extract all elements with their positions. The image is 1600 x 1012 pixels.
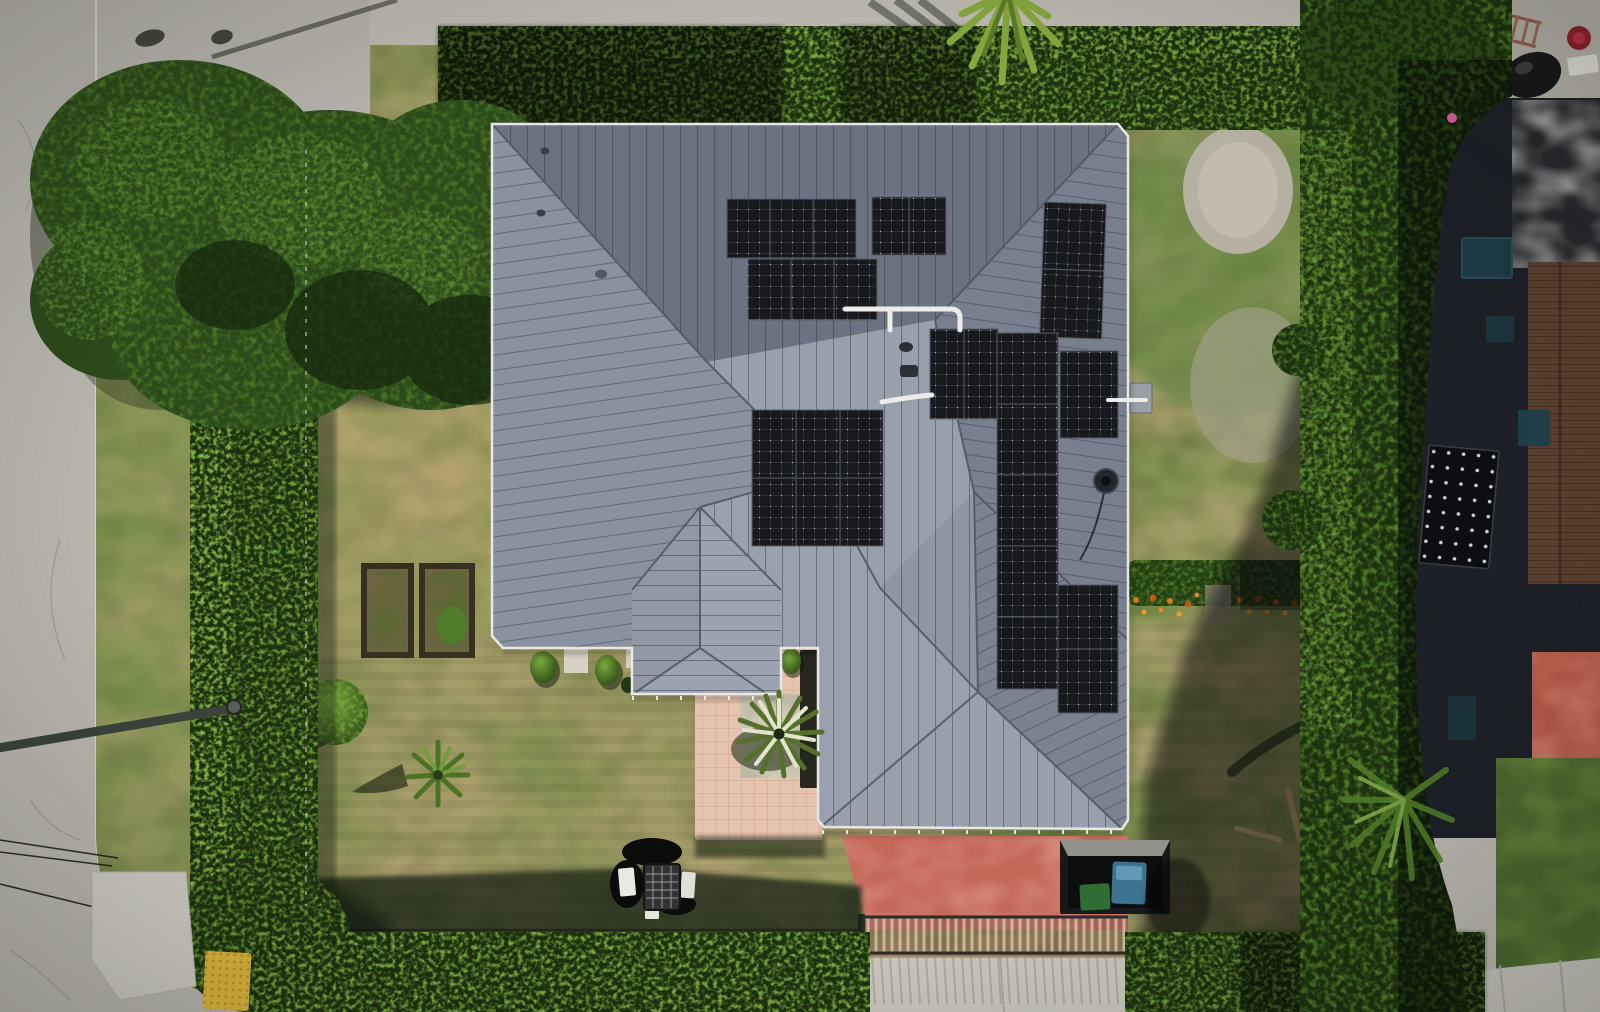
vignette — [0, 0, 1600, 1012]
aerial-photo — [0, 0, 1600, 1012]
